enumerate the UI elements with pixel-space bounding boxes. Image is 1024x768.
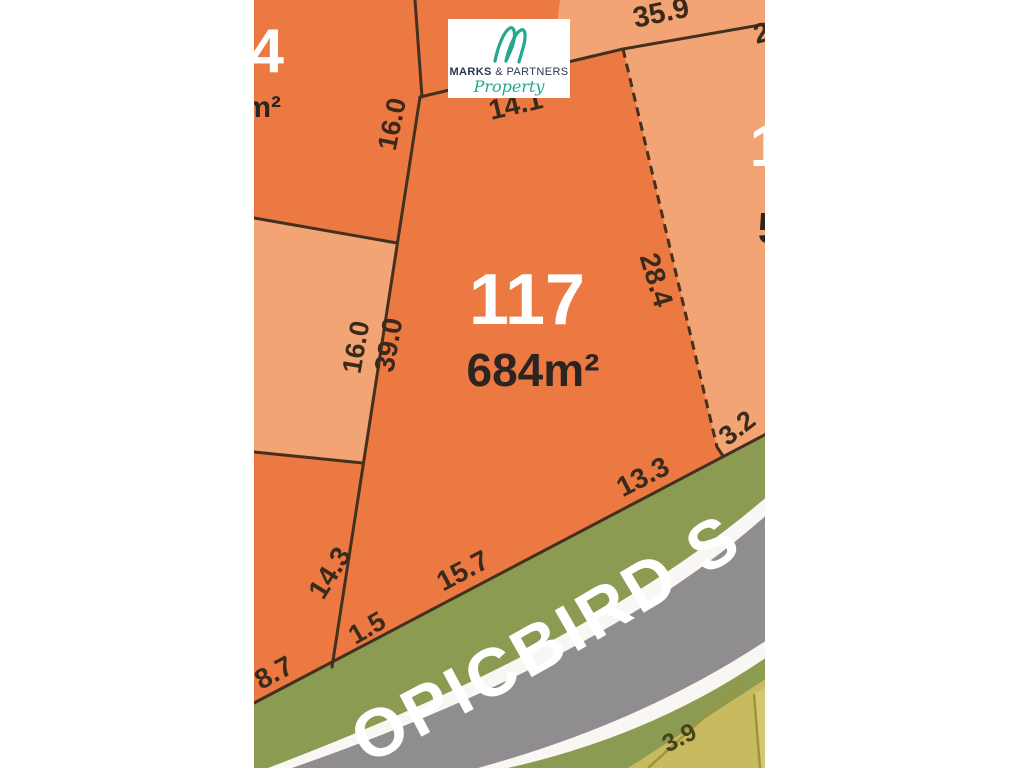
neighbor-nw-lot-number-partial: 4 (250, 17, 285, 86)
neighbor-east-lot-area-partial: 5 (758, 204, 782, 253)
lot-area-117: 684m² (467, 344, 600, 396)
lot-map-image: 35.9 2 14.1 16.0 16.0 39.0 28.4 3.2 13.3… (0, 0, 1024, 768)
map-canvas: 35.9 2 14.1 16.0 16.0 39.0 28.4 3.2 13.3… (0, 0, 1024, 768)
logo: MARKS & PARTNERS Property (448, 19, 570, 98)
lot-number-117: 117 (469, 260, 585, 340)
neighbor-nw-lot-area-partial: m² (244, 91, 281, 124)
neighbor-east-lot-number-partial: 1 (750, 114, 782, 179)
logo-tagline: Property (473, 77, 546, 96)
